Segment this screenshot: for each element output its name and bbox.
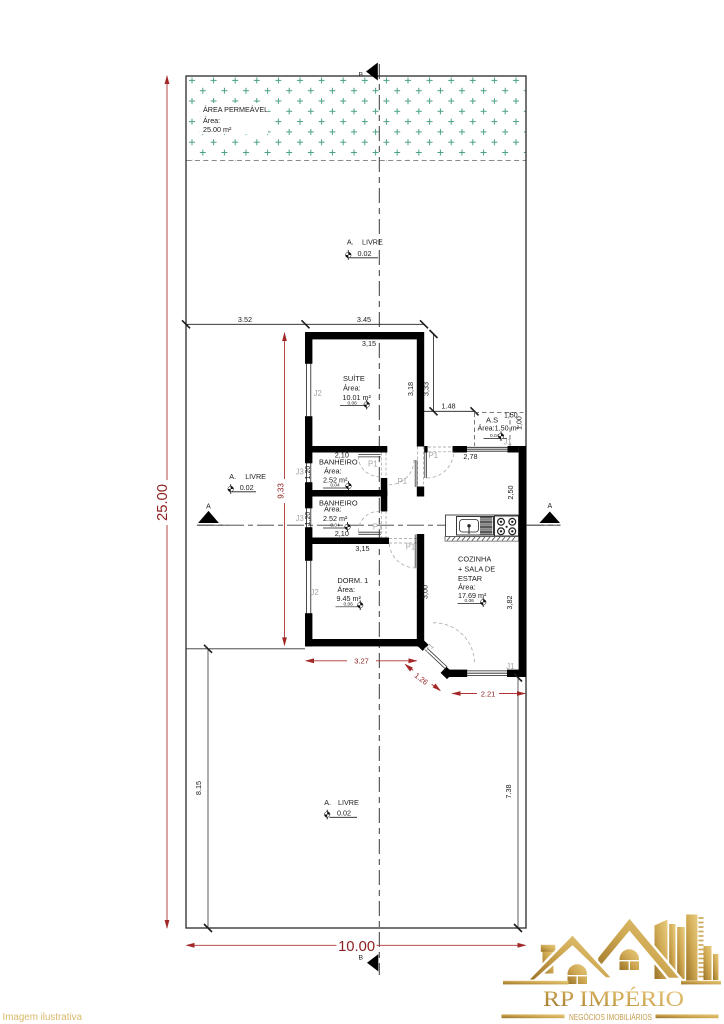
svg-text:0.02: 0.02: [240, 483, 254, 492]
svg-text:LIVRE: LIVRE: [245, 472, 266, 481]
svg-text:Área:: Área:: [343, 384, 361, 393]
svg-text:Área:: Área:: [324, 504, 342, 513]
svg-text:Imagem ilustrativa: Imagem ilustrativa: [3, 1012, 83, 1023]
svg-text:3,15: 3,15: [355, 544, 369, 553]
svg-text:1,00: 1,00: [517, 416, 524, 430]
svg-text:3.27: 3.27: [354, 657, 369, 666]
svg-text:A: A: [206, 504, 211, 511]
svg-text:A.: A.: [324, 798, 331, 807]
svg-text:3.45: 3.45: [357, 315, 371, 324]
svg-text:BANHEIRO: BANHEIRO: [319, 458, 358, 467]
svg-text:1,20: 1,20: [305, 466, 312, 480]
svg-text:COZINHA: COZINHA: [458, 554, 491, 563]
svg-text:ÁREA PERMEÁVEL: ÁREA PERMEÁVEL: [203, 105, 268, 114]
svg-text:2,10: 2,10: [335, 529, 349, 538]
svg-text:3,15: 3,15: [362, 339, 376, 348]
svg-text:7.38: 7.38: [504, 784, 513, 798]
svg-text:2,50: 2,50: [506, 485, 515, 499]
svg-text:A.: A.: [229, 472, 236, 481]
svg-text:9,33: 9,33: [277, 483, 286, 499]
svg-text:1,20: 1,20: [305, 512, 312, 526]
svg-text:10.00: 10.00: [338, 939, 375, 955]
svg-text:3,82: 3,82: [505, 595, 514, 609]
svg-text:P1: P1: [368, 460, 378, 469]
svg-text:J2: J2: [311, 588, 319, 597]
svg-text:2,78: 2,78: [463, 452, 477, 461]
svg-text:3,18: 3,18: [406, 382, 415, 396]
svg-text:25.00: 25.00: [155, 484, 171, 521]
svg-text:B: B: [359, 955, 364, 962]
svg-text:Área:: Área:: [203, 116, 220, 125]
svg-text:2.21: 2.21: [481, 689, 496, 698]
svg-text:J3: J3: [296, 514, 304, 523]
svg-text:RP IMPÉRIO: RP IMPÉRIO: [543, 986, 684, 1011]
svg-text:Área:1.50 m²: Área:1.50 m²: [478, 424, 520, 433]
svg-text:3.52: 3.52: [238, 315, 252, 324]
svg-text:J1: J1: [504, 438, 512, 447]
svg-text:Área:: Área:: [337, 585, 355, 594]
svg-text:1.48: 1.48: [441, 402, 455, 411]
svg-text:0.02: 0.02: [337, 809, 351, 818]
svg-text:A: A: [547, 503, 552, 510]
svg-text:0.04: 0.04: [330, 522, 340, 528]
svg-text:J3: J3: [296, 467, 304, 476]
svg-text:LIVRE: LIVRE: [362, 238, 383, 247]
svg-text:SUÍTE: SUÍTE: [343, 374, 365, 383]
svg-text:Área:: Área:: [324, 466, 342, 475]
svg-text:NEGÓCIOS IMOBILIÁRIOS: NEGÓCIOS IMOBILIÁRIOS: [569, 1013, 652, 1022]
svg-text:B: B: [359, 72, 364, 79]
svg-text:3,00: 3,00: [421, 585, 430, 599]
svg-text:8.15: 8.15: [194, 781, 203, 795]
svg-text:P1: P1: [373, 522, 383, 531]
svg-text:2.52 m²: 2.52 m²: [323, 514, 348, 523]
svg-text:+ SALA DE: + SALA DE: [458, 565, 495, 574]
svg-text:P1: P1: [406, 542, 416, 551]
svg-text:A.: A.: [347, 238, 354, 247]
svg-text:LIVRE: LIVRE: [338, 798, 359, 807]
svg-text:P1: P1: [398, 477, 408, 486]
svg-text:DORM. 1: DORM. 1: [337, 576, 368, 585]
svg-text:25.00 m²: 25.00 m²: [203, 125, 232, 134]
svg-text:0.02: 0.02: [358, 249, 372, 258]
svg-text:J1: J1: [506, 662, 514, 671]
svg-text:J2: J2: [314, 389, 322, 398]
svg-text:P1: P1: [429, 451, 439, 460]
